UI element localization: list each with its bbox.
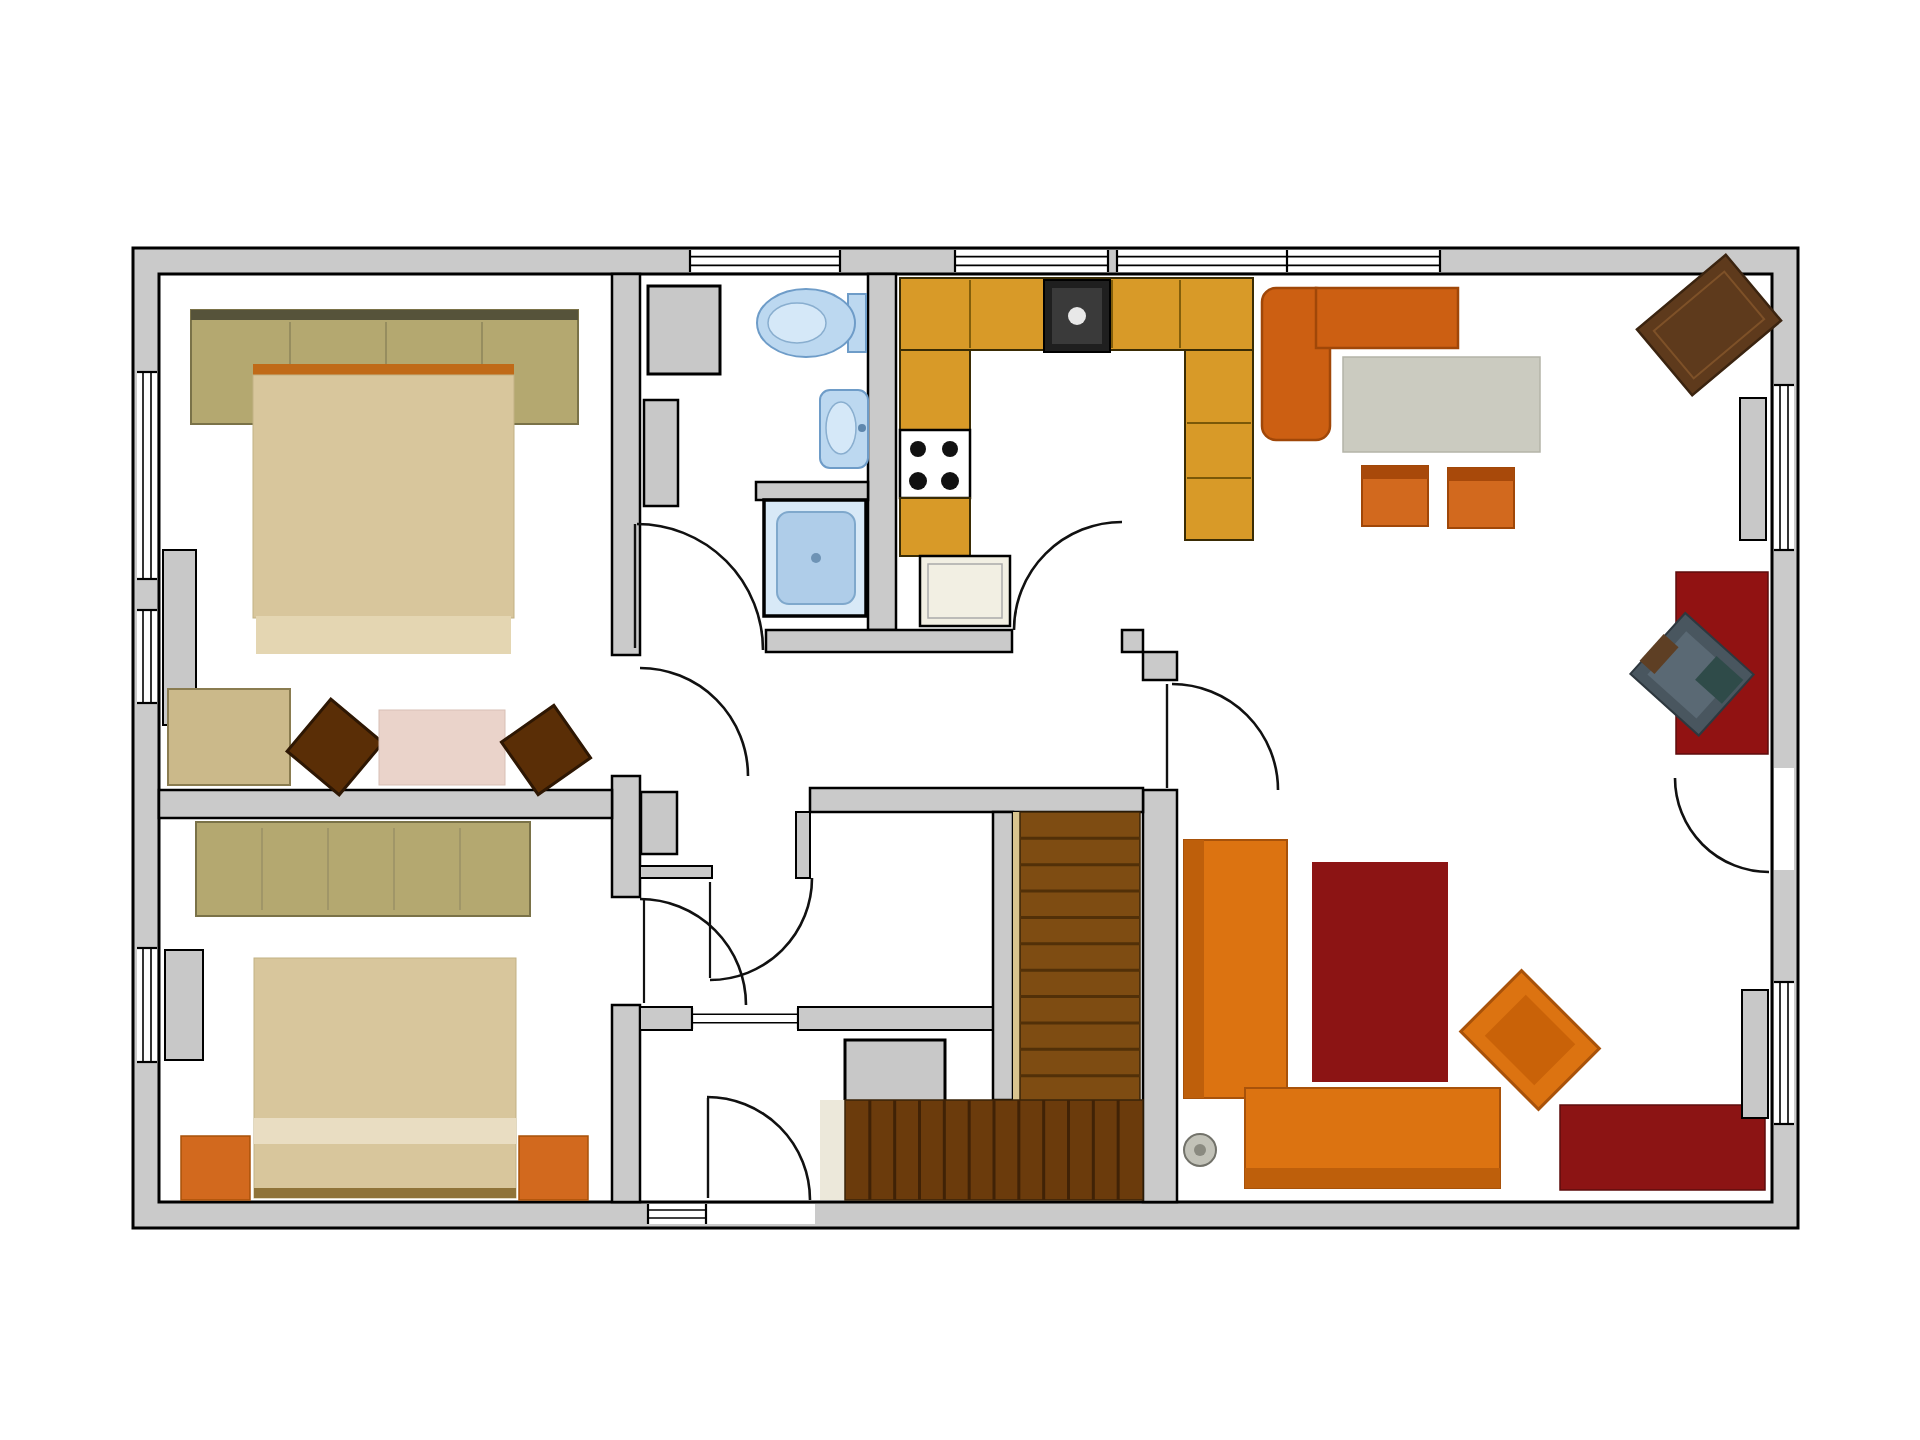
bathroom — [644, 286, 868, 616]
floor-plan-page — [0, 0, 1920, 1440]
wall-bath-bottom — [766, 630, 1012, 652]
stool — [287, 699, 383, 795]
dining-area — [1262, 288, 1540, 528]
sink-faucet — [858, 424, 866, 432]
sofa-horizontal-back — [1245, 1168, 1500, 1188]
wall-entry-top-left — [640, 1007, 692, 1030]
radiator — [165, 950, 203, 1060]
window-top-dining — [1287, 250, 1440, 272]
counter-left-lower — [900, 498, 970, 556]
floor-plan-canvas — [0, 0, 1920, 1440]
bath-cabinet-top — [648, 286, 720, 374]
opening-entry-top — [692, 1008, 798, 1029]
terrace-door-opening — [1774, 768, 1794, 870]
shower-partition — [756, 482, 868, 500]
window-left-bedroom1-b — [137, 610, 157, 703]
sideboard — [1560, 1105, 1765, 1190]
nightstand-left — [181, 1136, 250, 1200]
dishwasher — [920, 556, 1010, 626]
wall-bedrooms-hall-mid — [612, 776, 640, 897]
stair-lower-run — [845, 1100, 1143, 1200]
wardrobe — [196, 822, 530, 916]
wall-living-top-stub — [1143, 652, 1177, 680]
counter-left-leg — [900, 350, 970, 430]
rug-pink — [379, 710, 505, 785]
hallway-entry — [641, 792, 945, 1104]
wall-kitchen-door-stub — [1122, 630, 1143, 652]
toilet-bowl-inner — [768, 303, 826, 343]
wall-between-bedrooms — [159, 790, 612, 818]
wall-bath-kitchen — [868, 274, 896, 630]
door-arc-bedroom2 — [640, 899, 746, 1005]
burner — [909, 472, 927, 490]
wall-stairwell-top — [810, 788, 1143, 812]
door-arc-living — [1172, 684, 1278, 790]
entry-door-opening — [703, 1204, 815, 1224]
radiator-bottom-right — [1742, 990, 1768, 1118]
stove — [900, 430, 970, 498]
stair-edge-strip-vertical — [1013, 812, 1020, 1102]
burner — [941, 472, 959, 490]
window-top-kitchen-1 — [955, 250, 1108, 272]
door-arc-bathroom — [637, 524, 763, 650]
wall-entry-top-right — [798, 1007, 1013, 1030]
door-arc-entry — [707, 1097, 810, 1200]
burner — [942, 441, 958, 457]
rug-brown — [1637, 255, 1781, 395]
bed — [253, 375, 514, 618]
dining-chair-2-back — [1448, 468, 1514, 481]
bed-headboard — [253, 364, 514, 375]
sofa-vertical-back — [1184, 840, 1204, 1098]
sink-bowl — [826, 402, 856, 454]
bed-sheet-band — [254, 1118, 516, 1144]
plant-ball-center — [1194, 1144, 1206, 1156]
window-top-kitchen-2 — [1117, 250, 1290, 272]
window-right-dining — [1774, 385, 1794, 550]
door-arc-terrace — [1675, 778, 1769, 872]
stair-edge-strip-lower — [820, 1100, 845, 1200]
stool-left — [287, 699, 383, 795]
wall-vestibule-top — [640, 866, 712, 878]
dresser — [168, 689, 290, 785]
wall-entry-stairwell — [993, 812, 1013, 1100]
kitchen — [900, 278, 1253, 626]
bath-cabinet-left — [644, 400, 678, 506]
bed-footboard — [254, 1188, 516, 1198]
corner-bench-horizontal — [1316, 288, 1458, 348]
dining-table — [1343, 357, 1540, 452]
bedroom-2 — [165, 822, 588, 1200]
stool-right — [501, 705, 590, 794]
wall-bedrooms-hall-lower — [612, 1005, 640, 1202]
kitchen-sink-glint — [1068, 307, 1086, 325]
window-bottom-entry — [648, 1204, 706, 1224]
radiator-top-right — [1740, 398, 1766, 540]
bedroom-1 — [163, 310, 591, 795]
door-arc-vestibule — [710, 878, 812, 980]
counter-right-leg — [1185, 350, 1253, 540]
burner — [910, 441, 926, 457]
bed — [254, 958, 516, 1198]
window-left-bedroom1-a — [137, 372, 157, 579]
window-top-bathroom — [690, 250, 840, 272]
rug-brown-rotated — [1637, 255, 1781, 395]
shower-drain — [811, 553, 821, 563]
entry-cabinet — [845, 1040, 945, 1104]
wardrobe-top-strip — [191, 310, 578, 320]
stool — [501, 705, 590, 794]
wall-living-stair — [1143, 790, 1177, 1202]
dining-chair-1-back — [1362, 466, 1428, 479]
door-arc-kitchen — [1014, 522, 1122, 630]
bed-foot — [256, 616, 511, 654]
window-right-living — [1774, 982, 1794, 1124]
stair-upper-run — [1020, 812, 1140, 1102]
rug-dark-red — [1312, 862, 1448, 1082]
wall-stairwell-step — [796, 812, 810, 878]
window-left-bedroom2 — [137, 948, 157, 1062]
nightstand-right — [519, 1136, 588, 1200]
door-arc-bedroom1 — [640, 668, 748, 776]
hall-cabinet — [641, 792, 677, 854]
